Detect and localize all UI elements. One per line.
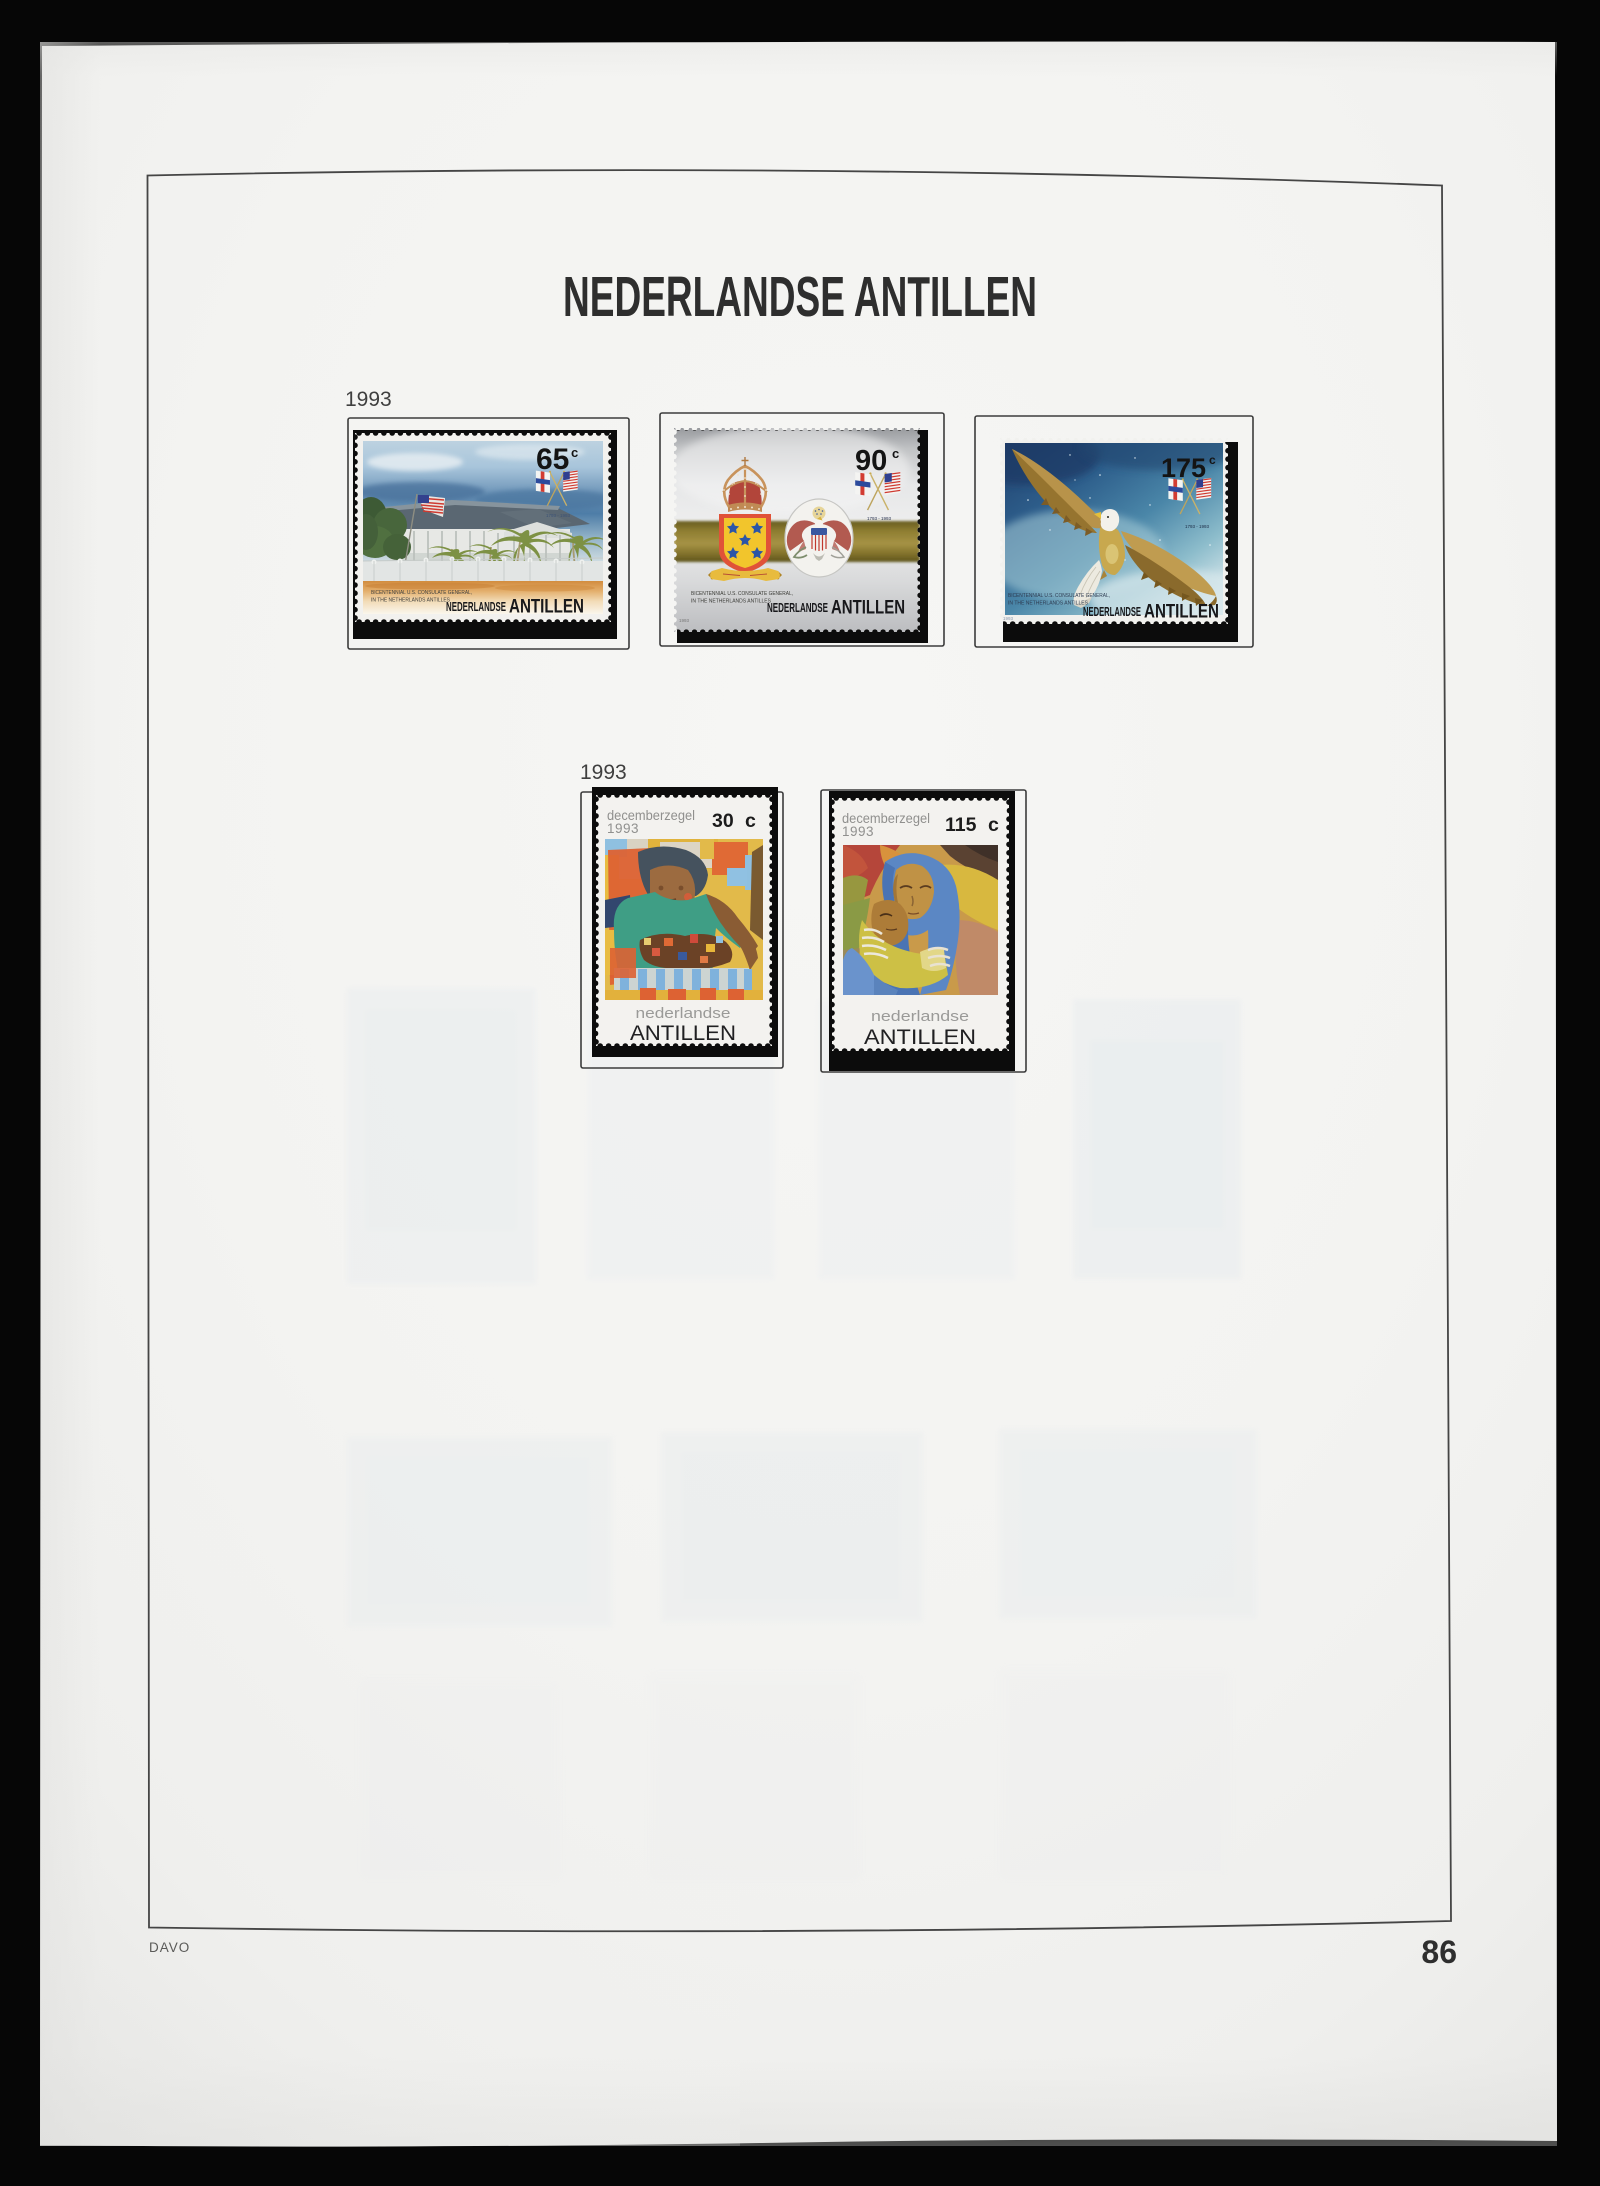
svg-text:DAVO: DAVO	[149, 1940, 190, 1955]
svg-text:30: 30	[712, 810, 734, 832]
svg-text:NEDERLANDSE: NEDERLANDSE	[1083, 605, 1141, 619]
svg-text:c: c	[745, 810, 756, 832]
svg-text:NEDERLANDSE: NEDERLANDSE	[767, 601, 828, 615]
svg-text:1793 - 1993: 1793 - 1993	[1185, 524, 1209, 529]
svg-text:175: 175	[1161, 453, 1206, 483]
svg-text:86: 86	[1421, 1934, 1457, 1970]
svg-text:IN THE NETHERLANDS ANTILLES: IN THE NETHERLANDS ANTILLES	[371, 598, 450, 604]
svg-text:90: 90	[855, 445, 887, 477]
svg-text:NEDERLANDSE: NEDERLANDSE	[446, 600, 506, 614]
svg-text:ANTILLEN: ANTILLEN	[1144, 602, 1219, 623]
svg-text:NEDERLANDSE ANTILLEN: NEDERLANDSE ANTILLEN	[563, 265, 1037, 329]
svg-text:c: c	[1209, 453, 1216, 467]
svg-text:c: c	[988, 814, 999, 836]
svg-text:BICENTENNIAL U.S. CONSULATE GE: BICENTENNIAL U.S. CONSULATE GENERAL,	[691, 591, 793, 597]
svg-text:c: c	[892, 446, 899, 461]
svg-text:c: c	[571, 445, 578, 460]
svg-text:1993: 1993	[679, 618, 690, 623]
svg-text:IN THE NETHERLANDS ANTILLES: IN THE NETHERLANDS ANTILLES	[1008, 601, 1088, 607]
svg-text:ANTILLEN: ANTILLEN	[630, 1021, 736, 1045]
svg-text:ANTILLEN: ANTILLEN	[831, 598, 905, 619]
svg-text:1993: 1993	[607, 821, 639, 836]
svg-text:nederlandse: nederlandse	[636, 1006, 731, 1022]
svg-text:IN THE NETHERLANDS ANTILLES: IN THE NETHERLANDS ANTILLES	[691, 599, 771, 605]
svg-text:BICENTENNIAL U.S. CONSULATE GE: BICENTENNIAL U.S. CONSULATE GENERAL,	[371, 590, 472, 596]
svg-text:ANTILLEN: ANTILLEN	[864, 1025, 976, 1049]
svg-text:1993: 1993	[842, 824, 874, 839]
svg-text:1793 - 1993: 1793 - 1993	[867, 516, 891, 521]
svg-text:BICENTENNIAL U.S. CONSULATE GE: BICENTENNIAL U.S. CONSULATE GENERAL,	[1008, 593, 1110, 599]
svg-text:nederlandse: nederlandse	[871, 1009, 969, 1025]
svg-text:115: 115	[945, 814, 977, 836]
svg-text:1993: 1993	[1003, 616, 1014, 621]
svg-text:1793 - 1993: 1793 - 1993	[546, 513, 570, 518]
svg-text:1993: 1993	[345, 388, 392, 411]
svg-text:1993: 1993	[580, 761, 627, 784]
